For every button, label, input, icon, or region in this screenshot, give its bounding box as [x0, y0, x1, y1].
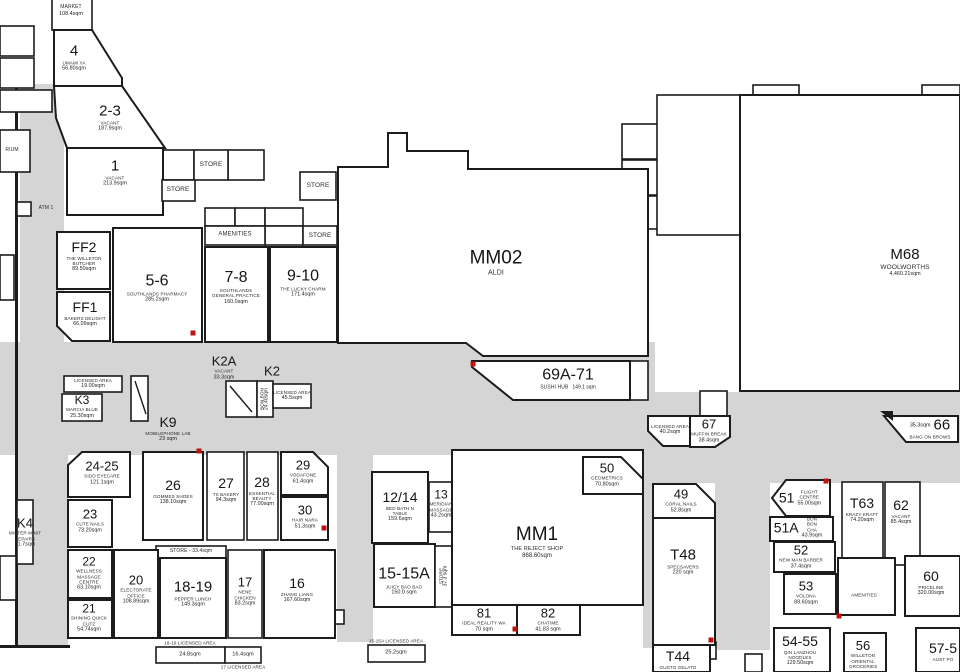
- door-marker-red: [322, 526, 327, 531]
- tenancy-box-market: [52, 0, 92, 30]
- room-box: [265, 226, 303, 245]
- tenancy-box-k3: [62, 394, 102, 421]
- room-box: [0, 26, 34, 56]
- tenancy-box-m68: [740, 95, 960, 391]
- tenancy-box-t2_3: [54, 86, 165, 148]
- tenancy-box-amen_top: [205, 226, 265, 245]
- room-box: [630, 361, 648, 400]
- door-marker-red: [197, 449, 202, 454]
- room-box: [0, 556, 16, 600]
- tenancy-box-t28: [247, 452, 278, 540]
- tenancy-box-t4: [54, 30, 122, 86]
- tenancy-box-t82: [517, 605, 580, 635]
- tenancy-box-t13: [429, 482, 453, 532]
- room-box: [265, 208, 303, 226]
- tenancy-box-t81: [452, 605, 517, 635]
- tenancy-box-k2lic: [273, 384, 311, 408]
- tenancy-box-t17: [228, 550, 262, 638]
- tenancy-box-k4: [17, 500, 33, 564]
- tenancy-box-t23: [68, 500, 112, 547]
- tenancy-box-t60: [905, 556, 960, 616]
- room-box: [622, 124, 658, 159]
- room-box: [745, 654, 762, 672]
- tenancy-box-amen_r: [838, 558, 895, 615]
- room-box: [235, 208, 265, 226]
- tenancy-box-store_f: [435, 546, 453, 607]
- door-marker-red: [513, 627, 518, 632]
- room-box: [700, 391, 727, 416]
- tenancy-box-b24_8: [156, 647, 225, 663]
- tenancy-box-t29: [281, 452, 328, 495]
- tenancy-box-t51a: [770, 517, 833, 541]
- tenancy-box-layer: [0, 0, 960, 672]
- tenancy-box-t52: [774, 542, 835, 572]
- door-marker-red: [824, 479, 829, 484]
- tenancy-box-rium: [0, 130, 30, 172]
- tenancy-box-t15_15a: [374, 544, 435, 607]
- tenancy-box-t49: [653, 484, 715, 518]
- door-marker-red: [837, 614, 842, 619]
- corridor-floor: [643, 452, 653, 648]
- tenancy-box-ff1: [57, 292, 110, 341]
- tenancy-box-atm: [17, 202, 31, 216]
- tenancy-box-store_d: [303, 226, 337, 245]
- tenancy-box-store_a: [194, 150, 228, 180]
- room-box: [0, 58, 34, 88]
- tenancy-box-t24_25: [68, 452, 130, 497]
- tenancy-box-t44: [653, 645, 710, 672]
- tenancy-box-store_b: [162, 180, 195, 201]
- tenancy-box-t18_19: [160, 558, 226, 638]
- tenancy-box-t26: [143, 452, 203, 540]
- tenancy-box-t48: [653, 518, 715, 645]
- tenancy-box-t21: [68, 600, 112, 638]
- tenancy-box-t63: [842, 482, 883, 565]
- corridor-floor: [717, 625, 770, 650]
- room-box: [163, 150, 194, 180]
- door-marker-red: [191, 331, 196, 336]
- tenancy-box-t27: [207, 452, 244, 540]
- tenancy-box-t20: [114, 550, 158, 638]
- tenancy-box-b16_4: [225, 647, 261, 663]
- tenancy-box-t51: [772, 480, 830, 516]
- tenancy-box-mm02: [338, 133, 648, 356]
- tenancy-box-store_c: [300, 172, 336, 200]
- tenancy-box-t56: [844, 633, 886, 672]
- floorplan-svg: [0, 0, 960, 672]
- tenancy-box-store_e: [156, 546, 226, 558]
- tenancy-box-t9_10: [270, 247, 337, 342]
- outer-wall: [0, 645, 70, 648]
- corridor-floor: [715, 483, 770, 648]
- tenancy-box-t54_55: [774, 628, 830, 672]
- room-box: [205, 208, 235, 226]
- tenancy-box-t30: [281, 497, 328, 540]
- room-box: [0, 90, 52, 112]
- room-box: [228, 150, 264, 180]
- tenancy-box-t16: [264, 550, 335, 638]
- tenancy-box-t5_6: [113, 228, 202, 342]
- tenancy-box-b25_2: [368, 645, 425, 662]
- tenancy-box-t62: [885, 482, 920, 565]
- tenancy-box-t12_14: [372, 472, 428, 543]
- tenancy-box-t1: [67, 148, 163, 215]
- tenancy-box-k3lic: [64, 376, 122, 392]
- room-box: [0, 255, 14, 300]
- door-marker-red: [471, 362, 476, 367]
- room-box: [131, 376, 148, 421]
- tenancy-box-t22: [68, 550, 112, 598]
- tenancy-box-t7_8: [205, 247, 268, 342]
- room-box: [657, 95, 743, 235]
- tenancy-box-t53: [784, 574, 836, 614]
- door-marker-red: [709, 638, 714, 643]
- tenancy-box-t57: [916, 628, 960, 672]
- tenancy-box-k2strip: [257, 381, 273, 417]
- floorplan-page: MARKET108.4sqm4UMAMI YA56.80sqm2-3VACANT…: [0, 0, 960, 672]
- tenancy-box-ff2: [57, 232, 110, 289]
